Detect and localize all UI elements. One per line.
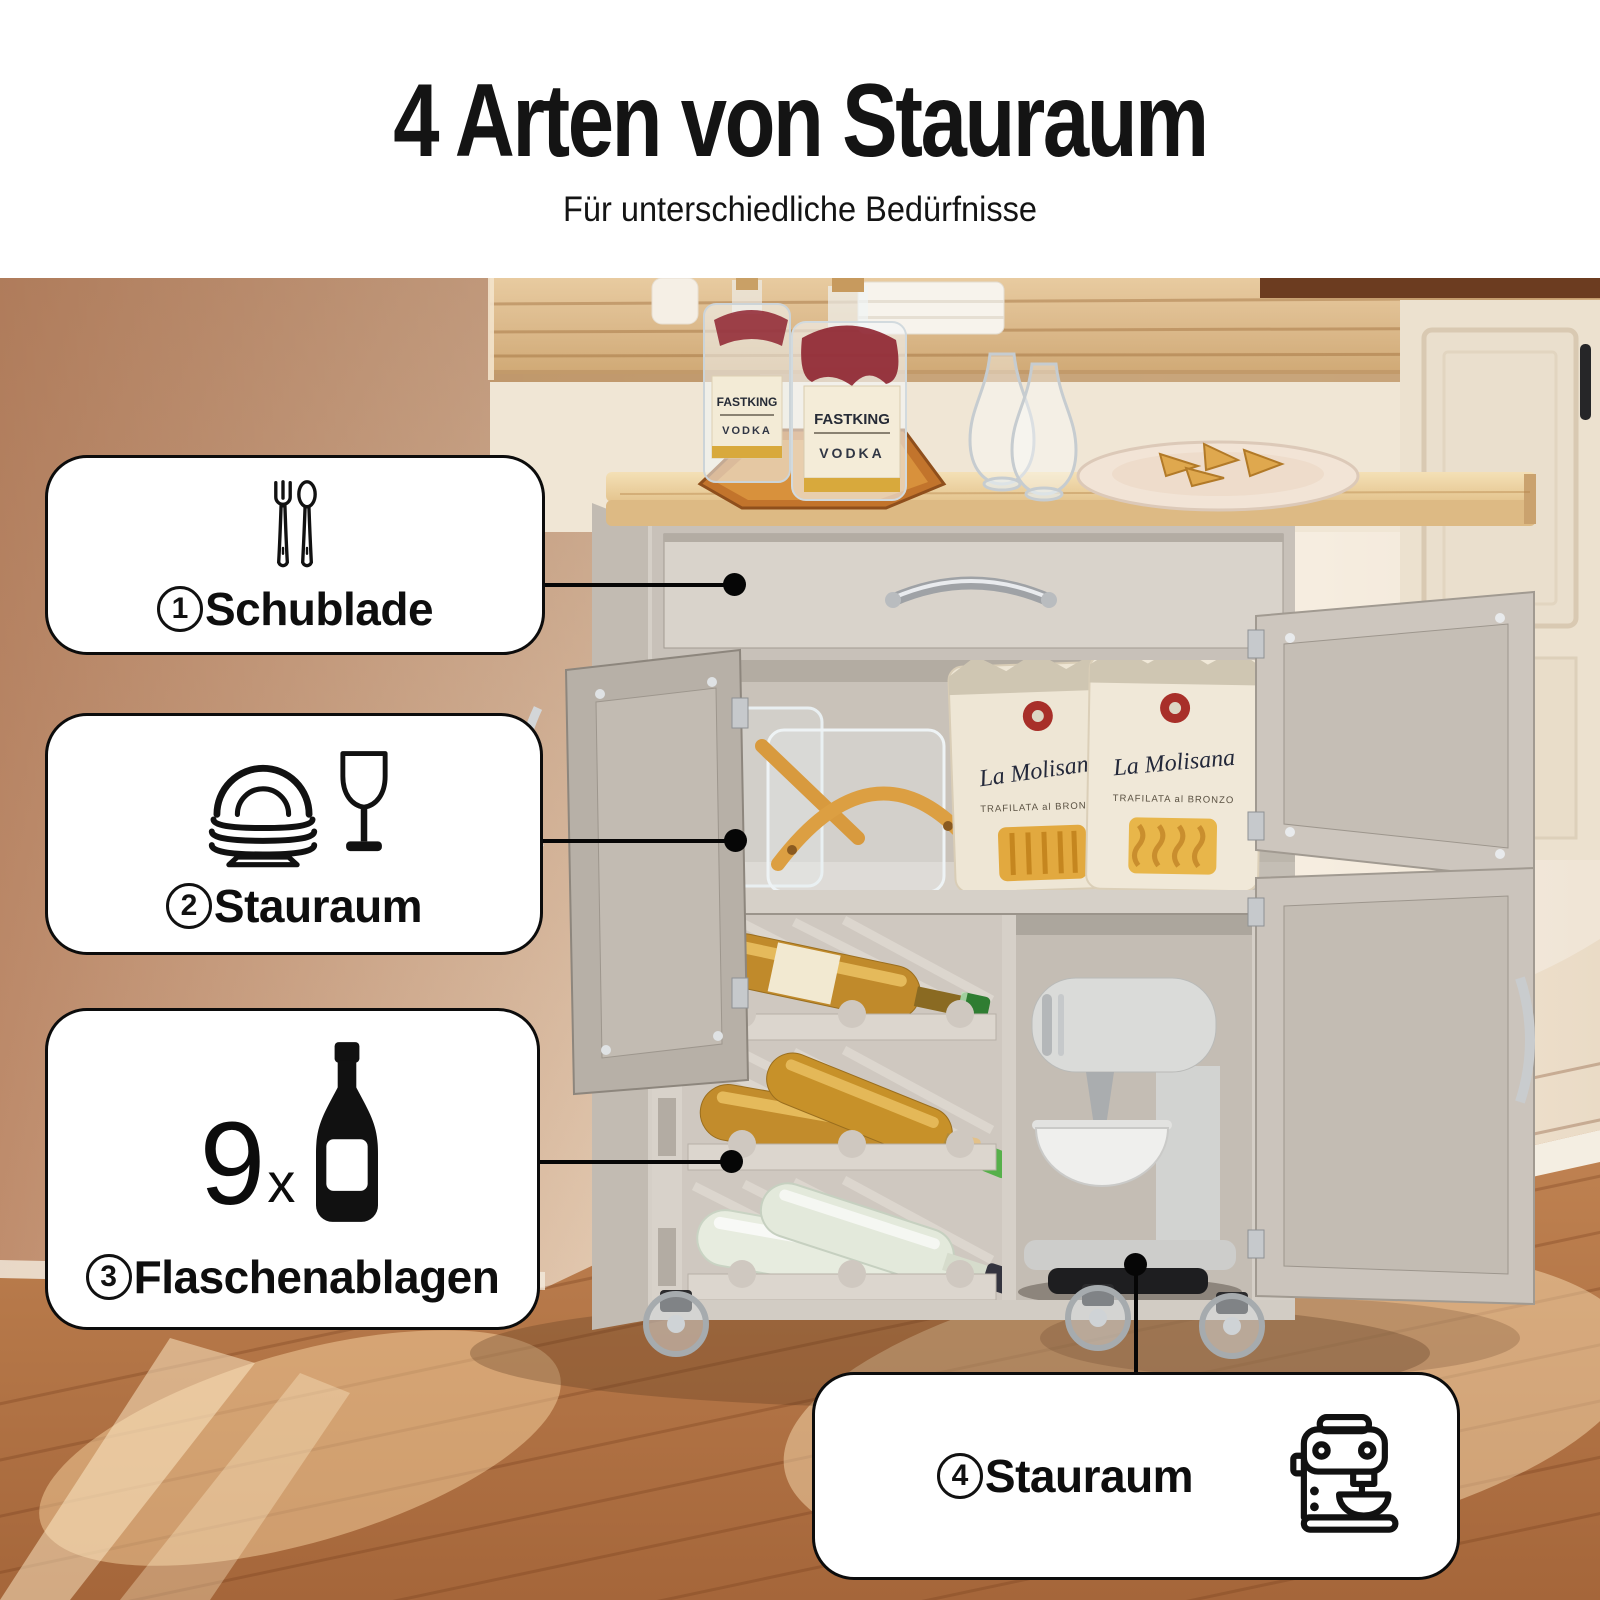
- page-subtitle: Für unterschiedliche Bedürfnisse: [56, 190, 1544, 230]
- leader-dot-storage: [724, 829, 747, 852]
- lower-right-compartment: [1016, 915, 1252, 1306]
- hinge: [1248, 1230, 1264, 1258]
- header: 4 Arten von Stauraum Für unterschiedlich…: [0, 0, 1600, 278]
- pasta-bag-fusilli: La Molisana TRAFILATA al BRONZO: [1086, 645, 1262, 892]
- leader-dot-lower-storage: [1124, 1253, 1147, 1276]
- callout-label: 4 Stauraum: [859, 1449, 1271, 1503]
- callout-text: Schublade: [205, 582, 433, 636]
- cabinet-handle: [1580, 344, 1591, 420]
- vodka-brand-text: FASTKING: [814, 411, 890, 428]
- callout-label: 2 Stauraum: [166, 879, 422, 933]
- snack-plate: [1078, 442, 1358, 510]
- callout-text: Stauraum: [214, 879, 422, 933]
- callout-text: Flaschenablagen: [134, 1250, 500, 1304]
- hinge: [1248, 812, 1264, 840]
- shelf-divider: [652, 890, 1295, 915]
- hinge: [732, 978, 748, 1008]
- callout-icon-row: [193, 741, 395, 869]
- callout-label: 1 Schublade: [157, 582, 433, 636]
- middle-compartment: La Molisana TRAFILATA al BRONZO La Molis…: [652, 645, 1295, 893]
- plate-stack-icon: [193, 741, 333, 869]
- caster-wheel: [1068, 1284, 1128, 1348]
- caster-wheel: [1202, 1292, 1262, 1356]
- right-upper-door-open: [1248, 592, 1534, 880]
- pasta-line-text: TRAFILATA al BRONZO: [1113, 793, 1235, 806]
- bottle-count: 9: [200, 1118, 266, 1210]
- vodka-bottle: FASTKING VODKA: [704, 278, 790, 482]
- vodka-type-text: VODKA: [819, 445, 885, 461]
- callout-drawer: 1 Schublade: [45, 455, 545, 655]
- fork-and-spoon-icon: [262, 476, 328, 572]
- product-infographic: 4 Arten von Stauraum Für unterschiedlich…: [0, 0, 1600, 1600]
- right-lower-door-open: [1248, 868, 1534, 1304]
- leader-line-storage: [543, 839, 736, 843]
- callout-label: 3 Flaschenablagen: [86, 1250, 500, 1304]
- callout-icon-row: 9 x: [200, 1040, 386, 1226]
- leader-line-lower-storage: [1134, 1265, 1138, 1375]
- page-title: 4 Arten von Stauraum: [160, 62, 1440, 181]
- callout-text: Stauraum: [985, 1449, 1193, 1503]
- hinge: [1248, 898, 1264, 926]
- leader-dot-bottle-rack: [720, 1150, 743, 1173]
- callout-number: 2: [166, 883, 212, 929]
- callout-number: 4: [937, 1453, 983, 1499]
- hinge: [732, 698, 748, 728]
- callout-bottle-racks: 9 x 3 Flaschenablagen: [45, 1008, 540, 1330]
- hinge: [1248, 630, 1264, 658]
- leader-dot-drawer: [723, 573, 746, 596]
- wine-bottle-icon: [309, 1040, 385, 1226]
- caster-wheel: [646, 1290, 706, 1354]
- leader-line-drawer: [545, 583, 735, 587]
- callout-number: 1: [157, 586, 203, 632]
- drawer: [652, 525, 1295, 660]
- leader-line-bottle-rack: [540, 1160, 732, 1164]
- callout-lower-storage: 4 Stauraum: [812, 1372, 1460, 1580]
- vodka-brand-text: FASTKING: [717, 395, 778, 409]
- bottle-count-suffix: x: [267, 1161, 295, 1206]
- callout-storage: 2 Stauraum: [45, 713, 543, 955]
- stand-mixer-icon: [1281, 1410, 1413, 1542]
- callout-number: 3: [86, 1254, 132, 1300]
- candle: [652, 278, 698, 324]
- wineglass-icon: [333, 747, 395, 869]
- vodka-type-text: VODKA: [722, 425, 772, 437]
